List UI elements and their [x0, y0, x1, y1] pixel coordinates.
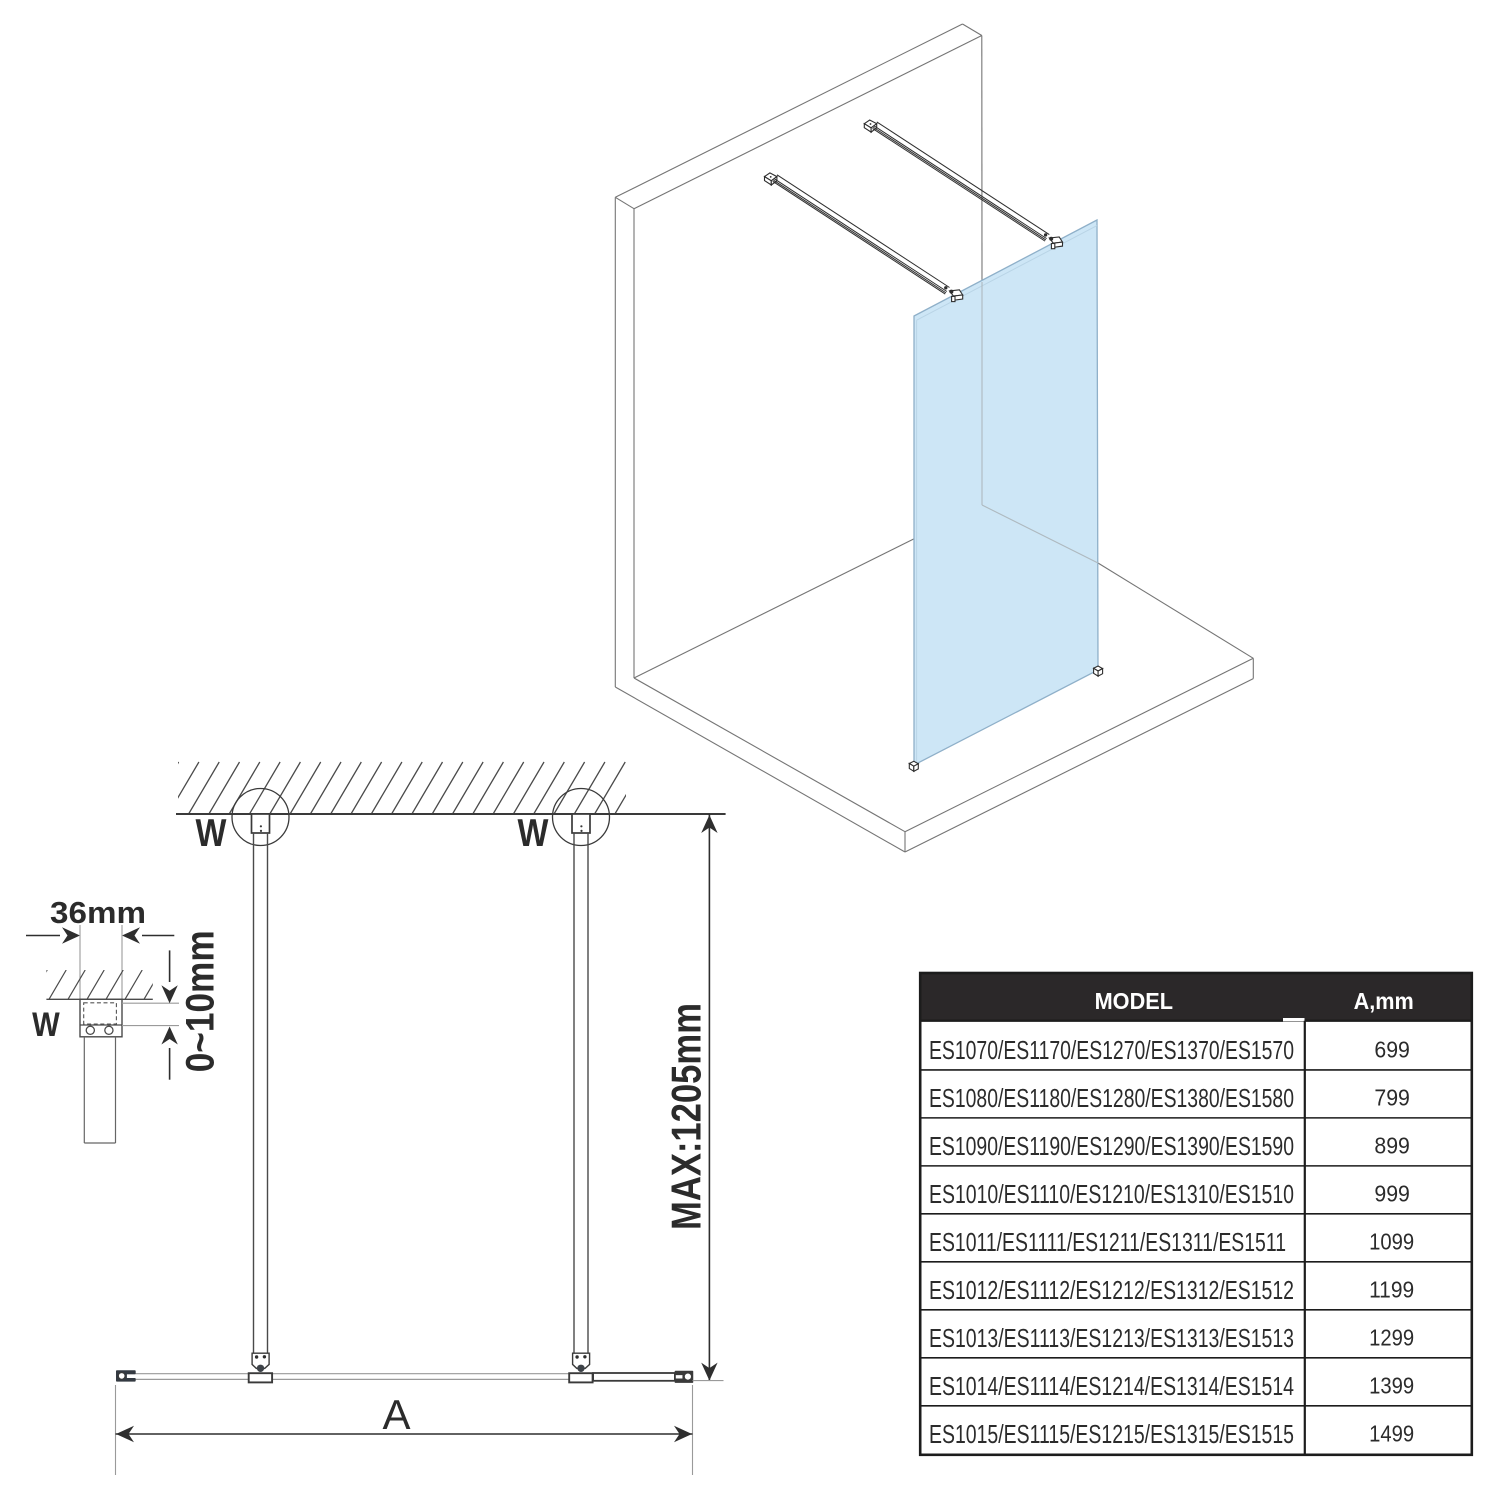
svg-text:MODEL: MODEL [1095, 988, 1173, 1014]
svg-text:0~10mm: 0~10mm [179, 930, 223, 1072]
svg-text:ES1013/ES1113/ES1213/ES1313/ES: ES1013/ES1113/ES1213/ES1313/ES1513 [929, 1325, 1294, 1353]
svg-text:ES1070/ES1170/ES1270/ES1370/ES: ES1070/ES1170/ES1270/ES1370/ES1570 [929, 1037, 1294, 1065]
svg-text:A: A [382, 1391, 410, 1438]
svg-text:1199: 1199 [1369, 1276, 1414, 1302]
svg-text:1099: 1099 [1369, 1228, 1414, 1254]
svg-text:899: 899 [1374, 1132, 1410, 1158]
svg-text:699: 699 [1374, 1036, 1410, 1062]
svg-text:ES1011/ES1111/ES1211/ES1311/ES: ES1011/ES1111/ES1211/ES1311/ES1511 [929, 1229, 1286, 1257]
svg-text:A,mm: A,mm [1354, 988, 1414, 1014]
svg-text:36mm: 36mm [50, 895, 146, 930]
svg-text:W: W [518, 810, 549, 854]
svg-text:ES1014/ES1114/ES1214/ES1314/ES: ES1014/ES1114/ES1214/ES1314/ES1514 [929, 1373, 1294, 1401]
svg-text:ES1080/ES1180/ES1280/ES1380/ES: ES1080/ES1180/ES1280/ES1380/ES1580 [929, 1085, 1294, 1113]
svg-text:MAX:1205mm: MAX:1205mm [662, 1003, 709, 1230]
svg-text:1499: 1499 [1369, 1420, 1414, 1446]
svg-text:W: W [196, 810, 227, 854]
svg-text:ES1010/ES1110/ES1210/ES1310/ES: ES1010/ES1110/ES1210/ES1310/ES1510 [929, 1181, 1294, 1209]
svg-text:ES1015/ES1115/ES1215/ES1315/ES: ES1015/ES1115/ES1215/ES1315/ES1515 [929, 1421, 1294, 1449]
svg-text:W: W [32, 1005, 60, 1044]
svg-text:1299: 1299 [1369, 1324, 1414, 1350]
svg-text:799: 799 [1374, 1084, 1410, 1110]
svg-text:999: 999 [1374, 1180, 1410, 1206]
svg-text:ES1090/ES1190/ES1290/ES1390/ES: ES1090/ES1190/ES1290/ES1390/ES1590 [929, 1133, 1294, 1161]
svg-text:ES1012/ES1112/ES1212/ES1312/ES: ES1012/ES1112/ES1212/ES1312/ES1512 [929, 1277, 1294, 1305]
svg-text:1399: 1399 [1369, 1372, 1414, 1398]
